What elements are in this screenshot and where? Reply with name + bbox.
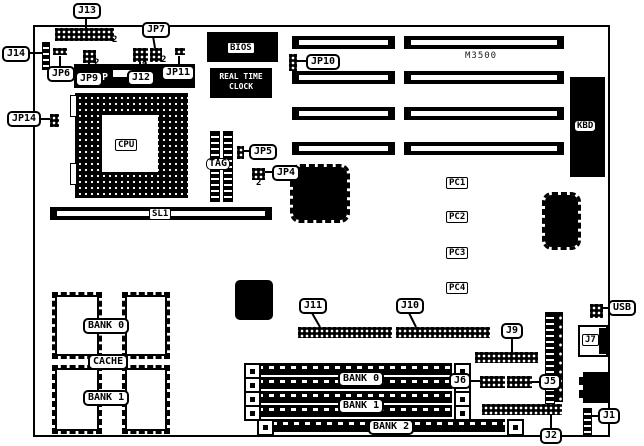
callout-jp10: JP10 xyxy=(306,54,340,70)
callout-j11: J11 xyxy=(299,298,327,314)
simm-bank0-label: BANK 0 xyxy=(338,371,384,387)
callout-jp14: JP14 xyxy=(7,111,41,127)
callout-j5: J5 xyxy=(539,374,561,390)
cache-bank1-label: BANK 1 xyxy=(83,390,129,406)
callout-j2: J2 xyxy=(540,428,562,444)
simm-bank2-label: BANK 2 xyxy=(368,419,414,435)
simm-bank1-label: BANK 1 xyxy=(338,398,384,414)
jp7-pin-annotation: 2 xyxy=(161,55,166,65)
callout-j13: J13 xyxy=(73,3,101,19)
callout-j14: J14 xyxy=(2,46,30,62)
callout-j1: J1 xyxy=(598,408,620,424)
callout-jp6: JP6 xyxy=(47,66,75,82)
callout-jp5: JP5 xyxy=(249,144,277,160)
callout-j6: J6 xyxy=(449,373,471,389)
tag-label: TAG xyxy=(206,158,230,170)
cache-bank0-label: BANK 0 xyxy=(83,318,129,334)
callout-jp4: JP4 xyxy=(272,165,300,181)
j13-pin-annotation: 2 xyxy=(112,35,117,45)
callout-j9: J9 xyxy=(501,323,523,339)
callout-j10: J10 xyxy=(396,298,424,314)
jp9-pin-annotation: 2 xyxy=(94,58,99,68)
callout-jp7: JP7 xyxy=(142,22,170,38)
jp4-pin-annotation: 2 xyxy=(256,178,261,188)
motherboard-diagram: P CPU BIOS REAL TIME CLOCK TAG SL1 M3500… xyxy=(0,0,644,446)
callout-j12: J12 xyxy=(127,70,155,86)
callout-usb: USB xyxy=(608,300,636,316)
cache-label: CACHE xyxy=(88,354,128,370)
callout-jp11: JP11 xyxy=(161,65,195,81)
j12-pin-annotation: 4 xyxy=(142,58,147,68)
callout-jp9: JP9 xyxy=(75,71,103,87)
